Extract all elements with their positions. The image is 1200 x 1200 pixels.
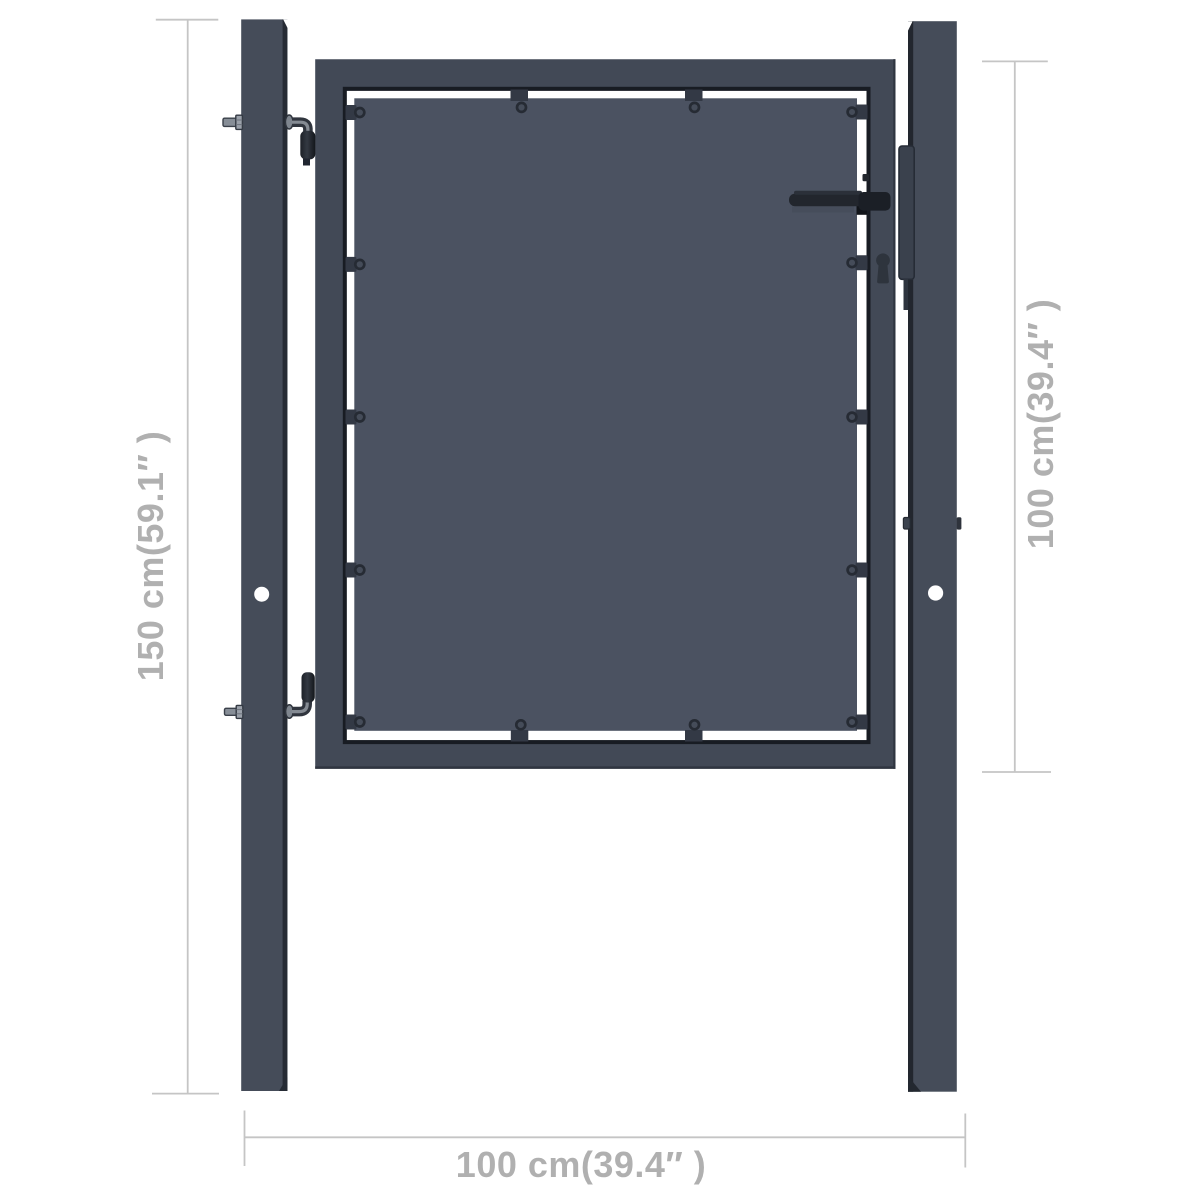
svg-text:100 cm(39.4″ ): 100 cm(39.4″ ) <box>1020 299 1061 549</box>
svg-text:150 cm(59.1″ ): 150 cm(59.1″ ) <box>130 431 171 681</box>
svg-text:100 cm(39.4″ ): 100 cm(39.4″ ) <box>456 1144 706 1185</box>
